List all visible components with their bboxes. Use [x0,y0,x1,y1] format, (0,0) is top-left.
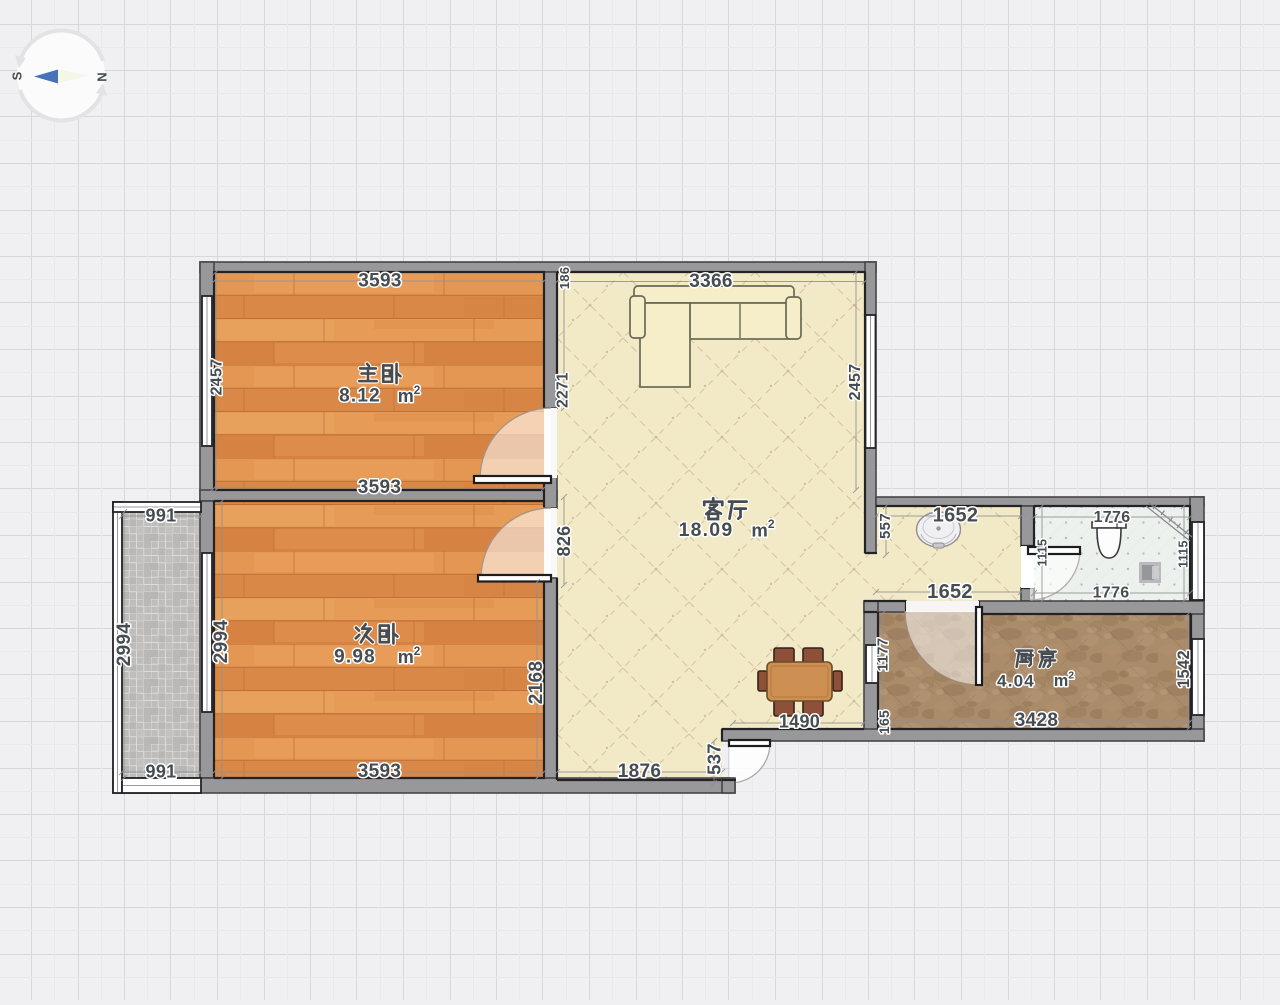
svg-text:4.04: 4.04 [997,672,1035,691]
svg-text:3366: 3366 [689,271,732,292]
svg-text:2994: 2994 [211,620,232,664]
svg-text:3593: 3593 [358,761,401,782]
svg-text:1490: 1490 [779,712,820,732]
svg-text:2457: 2457 [209,359,226,396]
svg-text:N: N [94,72,109,81]
svg-text:991: 991 [146,762,177,782]
svg-text:3593: 3593 [358,477,401,498]
svg-text:1776: 1776 [1093,585,1130,602]
svg-text:1177: 1177 [875,638,892,672]
svg-text:3593: 3593 [358,271,401,292]
svg-text:2457: 2457 [847,364,864,401]
svg-text:9.98: 9.98 [334,647,376,668]
svg-text:826: 826 [554,526,574,557]
svg-text:1542: 1542 [1175,650,1193,688]
svg-text:1652: 1652 [927,581,973,603]
svg-text:165: 165 [876,710,892,734]
svg-text:2271: 2271 [555,372,572,408]
svg-text:1115: 1115 [1036,539,1050,567]
svg-text:186: 186 [557,267,572,290]
svg-text:537: 537 [704,743,725,775]
svg-text:S: S [9,71,24,80]
svg-text:1776: 1776 [1094,509,1131,526]
svg-text:991: 991 [146,506,177,526]
svg-text:557: 557 [877,513,894,539]
svg-text:2994: 2994 [114,623,135,667]
svg-text:3428: 3428 [1015,710,1058,731]
svg-text:8.12: 8.12 [339,386,381,407]
svg-text:1876: 1876 [618,761,661,782]
svg-text:1115: 1115 [1177,540,1191,568]
svg-text:18.09: 18.09 [679,519,734,541]
svg-text:1652: 1652 [933,505,979,527]
svg-text:2168: 2168 [526,661,547,704]
